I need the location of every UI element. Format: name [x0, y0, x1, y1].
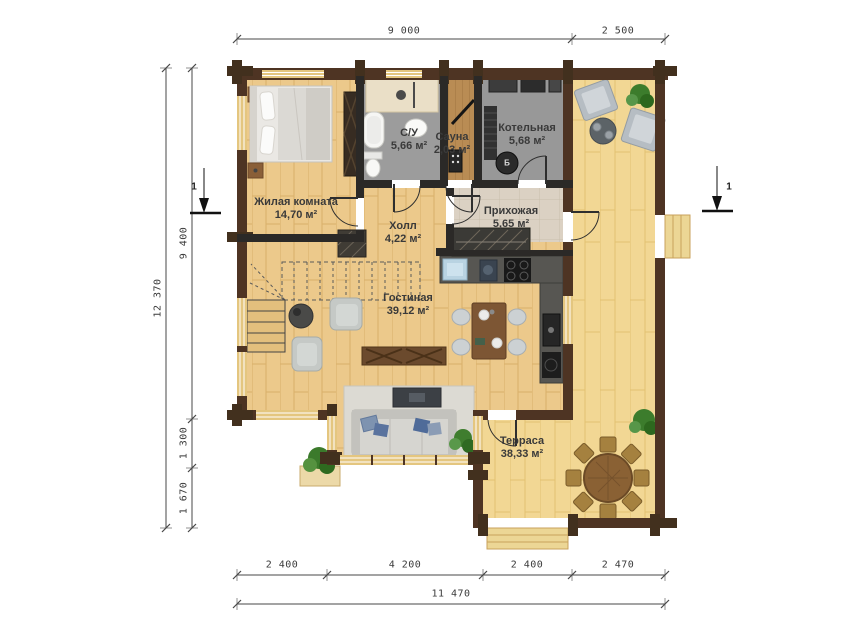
wicker-chair: [600, 504, 616, 519]
window: [340, 455, 468, 465]
sauna-stove: [449, 150, 462, 172]
window: [327, 416, 337, 450]
window: [237, 96, 247, 150]
terrace-steps-bottom: [487, 528, 568, 549]
section-marker-left-icon: [190, 168, 221, 213]
wicker-chair: [634, 470, 649, 486]
window: [473, 416, 483, 450]
window: [386, 70, 422, 78]
toilet: [364, 152, 382, 159]
window: [563, 296, 573, 344]
terrace-steps-right: [665, 215, 690, 258]
floor-plan-drawing: [0, 0, 847, 636]
side-table: [289, 304, 313, 328]
window: [256, 410, 318, 420]
boiler: [496, 152, 518, 174]
floor-hall: [364, 188, 446, 250]
coffee-table: [590, 118, 616, 144]
section-marker-right-icon: [702, 166, 733, 211]
wicker-chair: [600, 437, 616, 452]
washbasin: [405, 119, 427, 137]
floor-plan: 9 000 2 500 12 370 9 400 1 300 1 670 2 4…: [0, 0, 847, 636]
wicker-chair: [566, 470, 581, 486]
window: [237, 298, 247, 346]
window: [262, 70, 324, 78]
window: [237, 352, 247, 396]
wardrobe: [344, 92, 358, 176]
dining-table: [472, 303, 506, 359]
tv-console: [362, 347, 446, 365]
